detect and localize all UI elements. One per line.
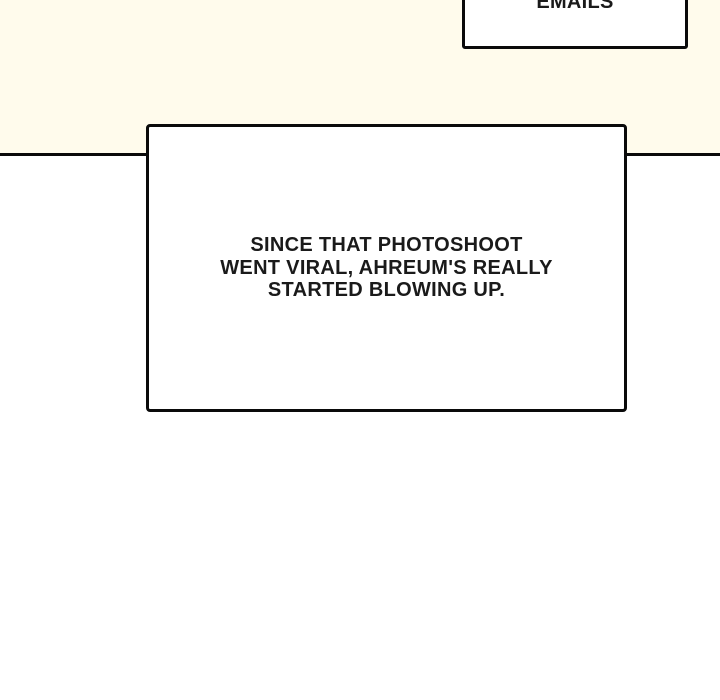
caption-text-emails: EMAILS	[465, 0, 685, 13]
caption-box-emails: EMAILS	[462, 0, 688, 49]
caption-text-narration: SINCE THAT PHOTOSHOOT WENT VIRAL, AHREUM…	[220, 234, 553, 302]
caption-box-narration: SINCE THAT PHOTOSHOOT WENT VIRAL, AHREUM…	[146, 124, 627, 412]
comic-page: EMAILS SINCE THAT PHOTOSHOOT WENT VIRAL,…	[0, 0, 720, 700]
